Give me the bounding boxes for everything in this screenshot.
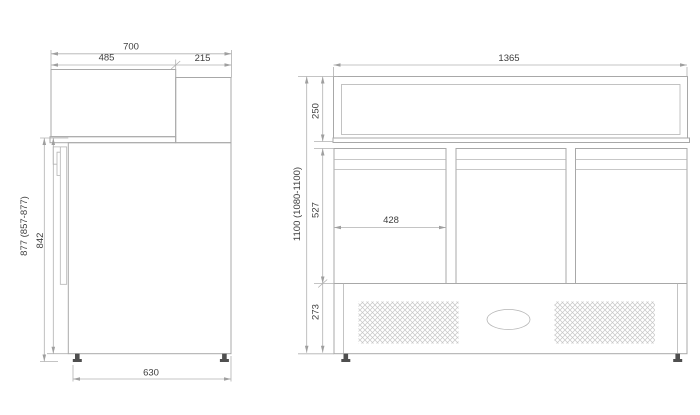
dim-plinth-height: 273 xyxy=(311,280,328,353)
dim-overall-height-front: 1100 (1080-1100) xyxy=(292,77,307,353)
plinth xyxy=(334,284,687,354)
worktop-front xyxy=(333,138,690,143)
dim-total-depth-label: 700 xyxy=(123,42,139,53)
dim-total-width-label: 1365 xyxy=(498,53,519,64)
glass-canopy-inner xyxy=(342,85,681,135)
dim-foot-span: 630 xyxy=(73,356,231,382)
dim-foot-span-label: 630 xyxy=(143,368,159,379)
dim-overall-height-side-label: 877 (857-877) xyxy=(19,196,30,256)
foot-front-left xyxy=(341,354,350,362)
dim-canopy-height-label: 250 xyxy=(311,103,322,119)
door-handle-profile xyxy=(53,147,60,176)
canopy-side-outline xyxy=(51,70,176,137)
drawing-canvas: 700 485 215 877 (857-877) 842 630 xyxy=(0,0,700,415)
dim-canopy-split: 485 215 xyxy=(51,53,232,78)
foot-side-left xyxy=(73,354,82,362)
dim-canopy-height: 250 xyxy=(311,77,323,142)
dim-total-width: 1365 xyxy=(334,53,688,77)
foot-side-right xyxy=(220,354,229,362)
door-2 xyxy=(456,149,566,284)
dim-body-height: 842 xyxy=(35,138,68,354)
dim-front-top-depth-label: 215 xyxy=(195,53,211,64)
drain-oval xyxy=(487,310,530,330)
door-3 xyxy=(576,149,688,284)
vent-grille-left xyxy=(359,302,459,344)
cabinet-side-outline xyxy=(68,143,231,354)
front-view: 1365 1100 (1080-1100) 250 527 273 xyxy=(292,53,690,362)
dim-canopy-depth-label: 485 xyxy=(99,53,115,64)
dim-door-height-label: 527 xyxy=(311,202,322,218)
dim-door-height: 527 xyxy=(311,149,323,284)
dim-overall-height-front-label: 1100 (1080-1100) xyxy=(292,167,303,241)
worktop-side xyxy=(50,137,176,143)
dim-door-width: 428 xyxy=(334,215,446,228)
dim-plinth-height-label: 273 xyxy=(311,304,322,320)
dim-overall-height-side: 877 (857-877) xyxy=(19,138,68,362)
overshelf-side-outline xyxy=(176,78,231,143)
dim-door-width-label: 428 xyxy=(383,215,399,226)
door-profile xyxy=(60,147,66,284)
vent-grille-right xyxy=(555,302,656,344)
foot-front-right xyxy=(673,354,682,362)
glass-canopy-outline xyxy=(334,77,688,139)
side-view: 700 485 215 877 (857-877) 842 630 xyxy=(19,42,232,382)
dim-body-height-label: 842 xyxy=(35,233,46,249)
dimension-drawing: 700 485 215 877 (857-877) 842 630 xyxy=(0,0,700,415)
